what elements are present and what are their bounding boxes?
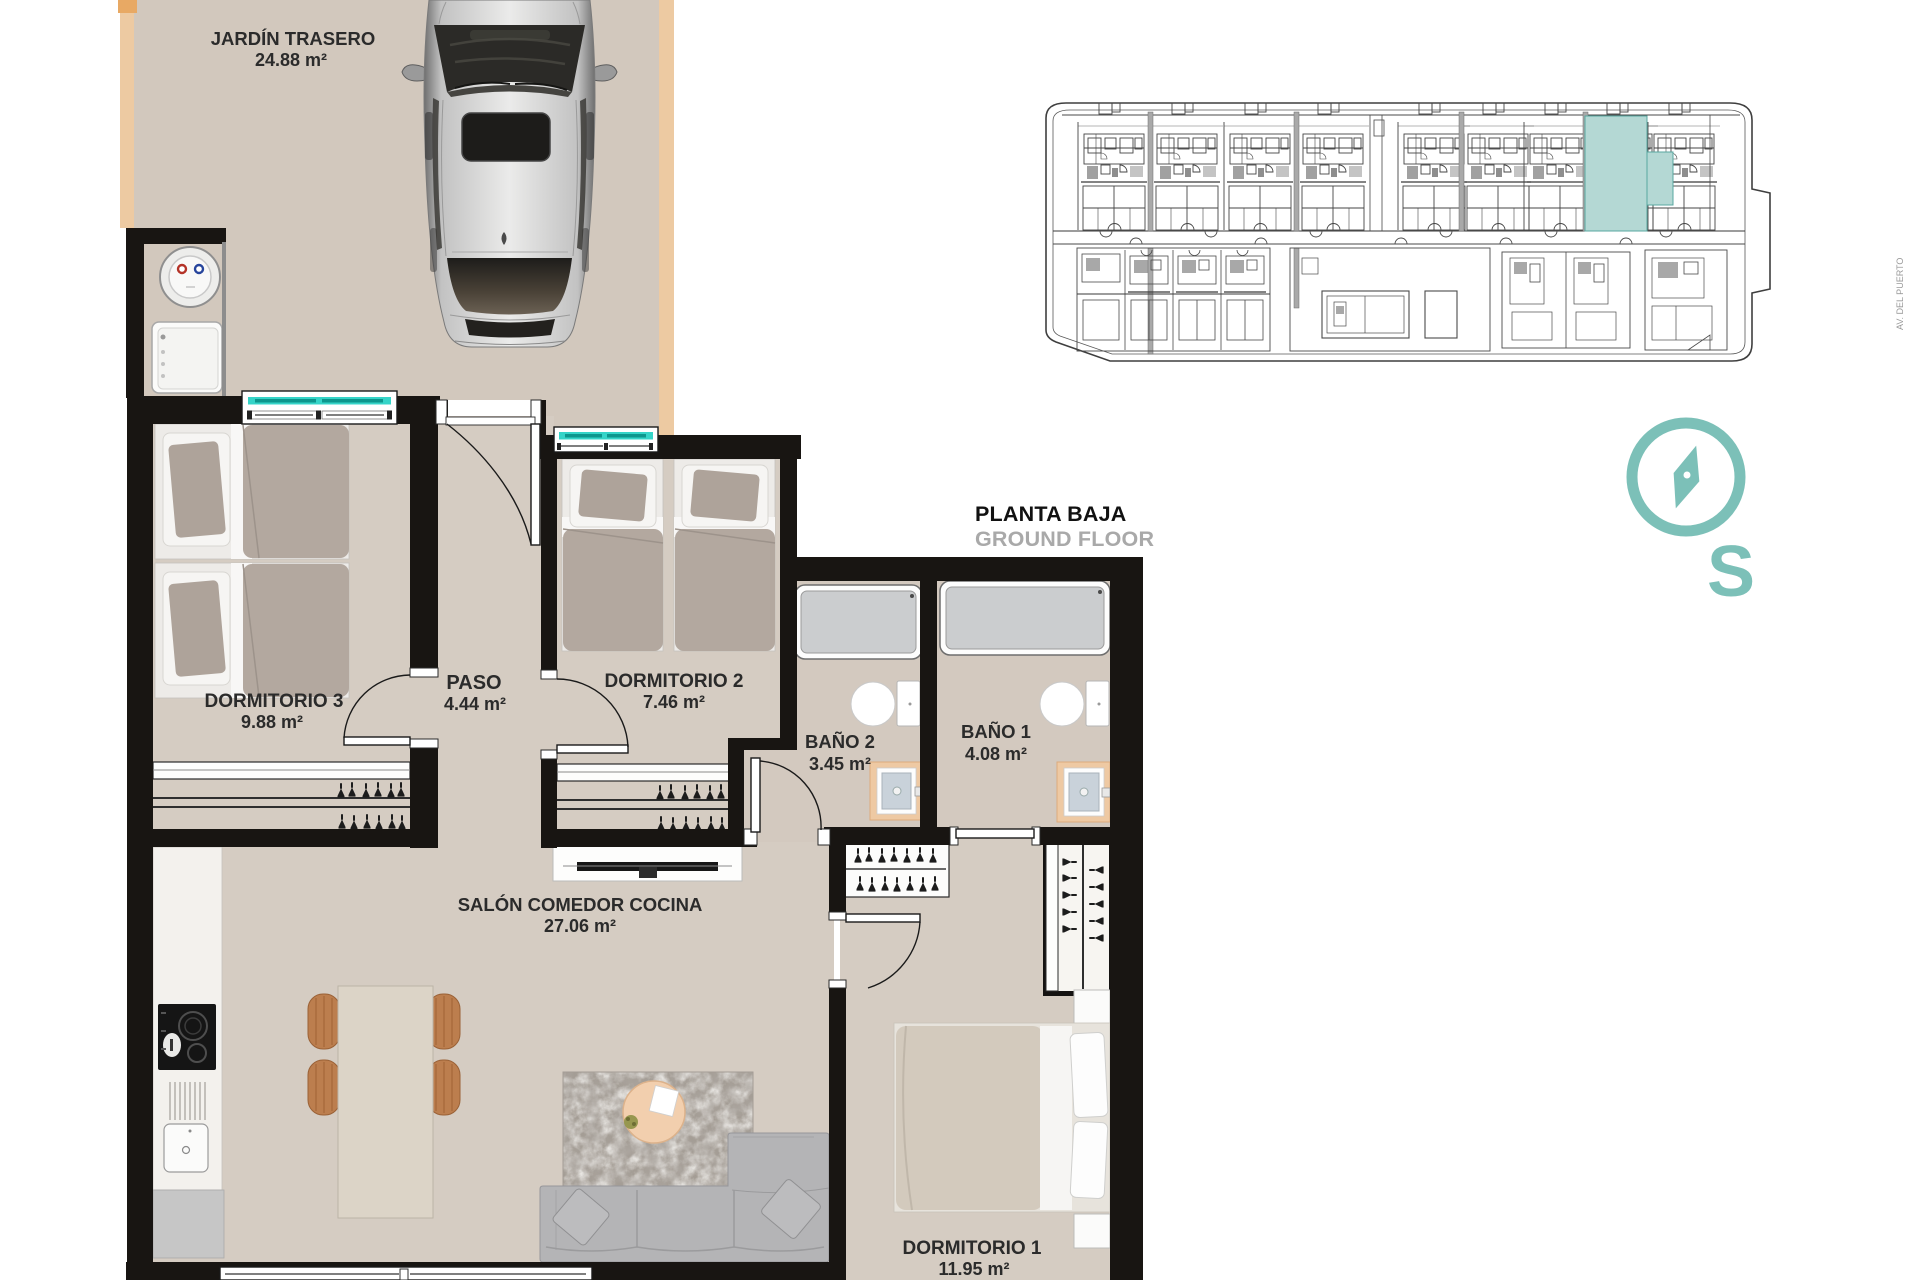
svg-text:SALÓN COMEDOR COCINA: SALÓN COMEDOR COCINA — [458, 894, 703, 915]
svg-text:7.46 m²: 7.46 m² — [643, 692, 705, 712]
svg-text:24.88 m²: 24.88 m² — [255, 50, 327, 70]
svg-text:BAÑO 2: BAÑO 2 — [805, 731, 875, 752]
svg-text:AV. DEL PUERTO: AV. DEL PUERTO — [1895, 258, 1905, 330]
svg-text:DORMITORIO 1: DORMITORIO 1 — [903, 1238, 1042, 1259]
svg-text:4.08 m²: 4.08 m² — [965, 744, 1027, 764]
svg-text:4.44 m²: 4.44 m² — [444, 694, 506, 714]
svg-text:PASO: PASO — [446, 672, 501, 694]
svg-text:GROUND FLOOR: GROUND FLOOR — [975, 527, 1154, 551]
svg-text:S: S — [1707, 532, 1755, 612]
svg-text:DORMITORIO 2: DORMITORIO 2 — [605, 671, 744, 692]
svg-text:11.95 m²: 11.95 m² — [938, 1259, 1009, 1279]
svg-text:27.06 m²: 27.06 m² — [544, 916, 616, 936]
svg-text:3.45 m²: 3.45 m² — [809, 754, 871, 774]
svg-text:BAÑO 1: BAÑO 1 — [961, 721, 1031, 742]
svg-text:DORMITORIO 3: DORMITORIO 3 — [205, 691, 344, 712]
svg-text:9.88 m²: 9.88 m² — [241, 712, 303, 732]
svg-text:JARDÍN TRASERO: JARDÍN TRASERO — [211, 28, 375, 49]
svg-text:PLANTA BAJA: PLANTA BAJA — [975, 502, 1127, 526]
